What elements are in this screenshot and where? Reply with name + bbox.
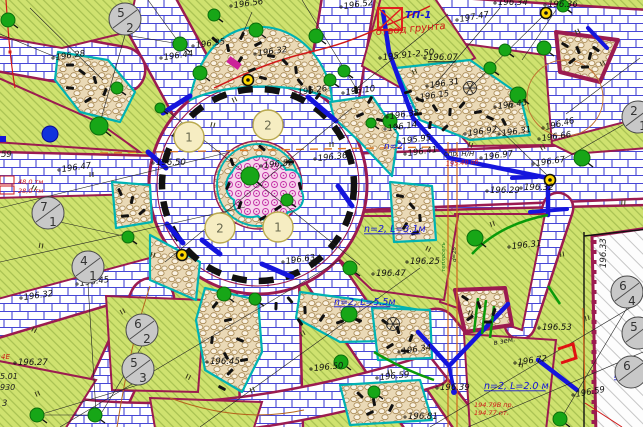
- note-label-red: 28,0 тм: [18, 187, 43, 195]
- zone-number: 2: [216, 222, 224, 236]
- species-count-bottom: 4: [628, 294, 636, 308]
- note-label: d=25: [452, 246, 458, 262]
- map-viewport[interactable]: 196.28196.44196.35196.56196.32196.26196.…: [0, 0, 643, 427]
- lawn-island: [106, 296, 205, 392]
- bush-icon: [208, 9, 220, 21]
- shrub-mark: [303, 306, 306, 314]
- red-node: [9, 51, 12, 54]
- bush-icon: [281, 194, 293, 206]
- bush-icon: [122, 231, 134, 243]
- species-count-bottom: 1: [49, 215, 57, 229]
- shrub-mark: [274, 302, 277, 310]
- bush-icon: [193, 66, 207, 80]
- brick-path: [352, 170, 643, 182]
- bush-icon: [88, 408, 102, 422]
- note-label-blue: ТП-1: [405, 10, 431, 21]
- bush-icon: [90, 117, 108, 135]
- elevation-label: 196.53: [542, 323, 572, 333]
- note-label: 196.33: [599, 238, 609, 268]
- bush-icon: [499, 44, 511, 56]
- note-label: спр. Н/Н: [444, 150, 475, 158]
- red-node: [308, 50, 311, 53]
- hydrant-blue-circle: [42, 126, 58, 142]
- note-label: 59: [1, 150, 12, 160]
- note-label-red: 194.77 пт.: [474, 409, 509, 417]
- species-count-bottom: 3: [139, 371, 147, 385]
- bush-icon: [111, 82, 123, 94]
- zone-number: 1: [274, 221, 282, 235]
- elevation-label: 196.81: [408, 412, 438, 422]
- shrub-mark: [581, 65, 589, 68]
- note-label-blue: n=2,: [384, 142, 406, 152]
- species-count-top: 6: [619, 279, 627, 293]
- species-count-bottom: 1: [639, 119, 643, 133]
- species-count-bottom: 2: [143, 332, 151, 346]
- junction-marker: [544, 11, 548, 15]
- shrub-mark: [448, 108, 452, 116]
- bush-icon: [249, 293, 261, 305]
- species-count-bottom: 1: [89, 269, 97, 283]
- note-label-blue: n=2, L=5.5м: [334, 297, 396, 308]
- site-plan-canvas[interactable]: 196.28196.44196.35196.56196.32196.26196.…: [0, 0, 643, 427]
- species-count-top: 6: [134, 317, 142, 331]
- elevation-label: 196.25: [410, 257, 440, 267]
- zone-number: 1: [185, 131, 193, 145]
- elevation-label: 196.29: [490, 186, 520, 196]
- elevation-label: 196.36: [548, 0, 578, 10]
- elevation-label: 196.50: [156, 158, 186, 168]
- pipe-node: [0, 136, 6, 142]
- species-count-bottom: 2: [126, 21, 134, 35]
- bush-icon: [343, 261, 357, 275]
- note-label: 930: [0, 383, 15, 392]
- zone-number: 2: [264, 119, 272, 133]
- bush-icon: [217, 287, 231, 301]
- bush-icon: [241, 167, 259, 185]
- species-count-top: 7: [40, 200, 48, 214]
- note-label-red: 48,0 тм: [18, 178, 43, 186]
- bush-icon: [155, 103, 165, 113]
- elevation-label: 196.45: [210, 357, 240, 367]
- species-count-top: 6: [623, 359, 631, 373]
- note-label-blue: n=2, L=2.0 м: [484, 381, 549, 392]
- elevation-label: 196.47: [376, 269, 406, 279]
- bush-icon: [484, 62, 496, 74]
- elevation-label: 196.27: [18, 358, 48, 368]
- junction-marker: [548, 178, 552, 182]
- elevation-label: 196.32: [524, 183, 554, 193]
- bush-icon: [368, 386, 380, 398]
- shrub-mark: [121, 214, 129, 218]
- bush-icon: [467, 230, 483, 246]
- junction-marker: [246, 78, 250, 82]
- note-label: 3: [2, 399, 7, 409]
- species-count-top: 4: [80, 254, 88, 268]
- note-label: теплосеть: [441, 242, 447, 272]
- bush-icon: [574, 150, 590, 166]
- note-label-red: 194.79В пр.: [474, 401, 514, 409]
- water-pipe: [512, 177, 537, 178]
- junction-marker: [180, 253, 184, 257]
- note-label-red: 4Е: [1, 353, 10, 361]
- bush-icon: [338, 65, 350, 77]
- elevation-label: 196.34: [498, 0, 528, 8]
- shrub-mark: [484, 320, 492, 323]
- bush-icon: [553, 412, 567, 426]
- elevation-label: 196.39: [440, 383, 470, 393]
- species-count-top: 5: [130, 356, 138, 370]
- note-label-blue: n=2, L=3.1м: [364, 224, 426, 235]
- bush-icon: [249, 23, 263, 37]
- bush-icon: [309, 29, 323, 43]
- species-count-top: 5: [117, 6, 125, 20]
- note-label: 5.01: [0, 372, 18, 381]
- bush-icon: [30, 408, 44, 422]
- shrub-mark: [66, 64, 74, 67]
- bush-icon: [173, 37, 187, 51]
- bush-icon: [1, 13, 15, 27]
- species-count-top: 5: [630, 320, 638, 334]
- bush-icon: [537, 41, 551, 55]
- bush-icon: [366, 118, 376, 128]
- species-count-top: 2: [630, 104, 638, 118]
- bush-icon: [341, 306, 357, 322]
